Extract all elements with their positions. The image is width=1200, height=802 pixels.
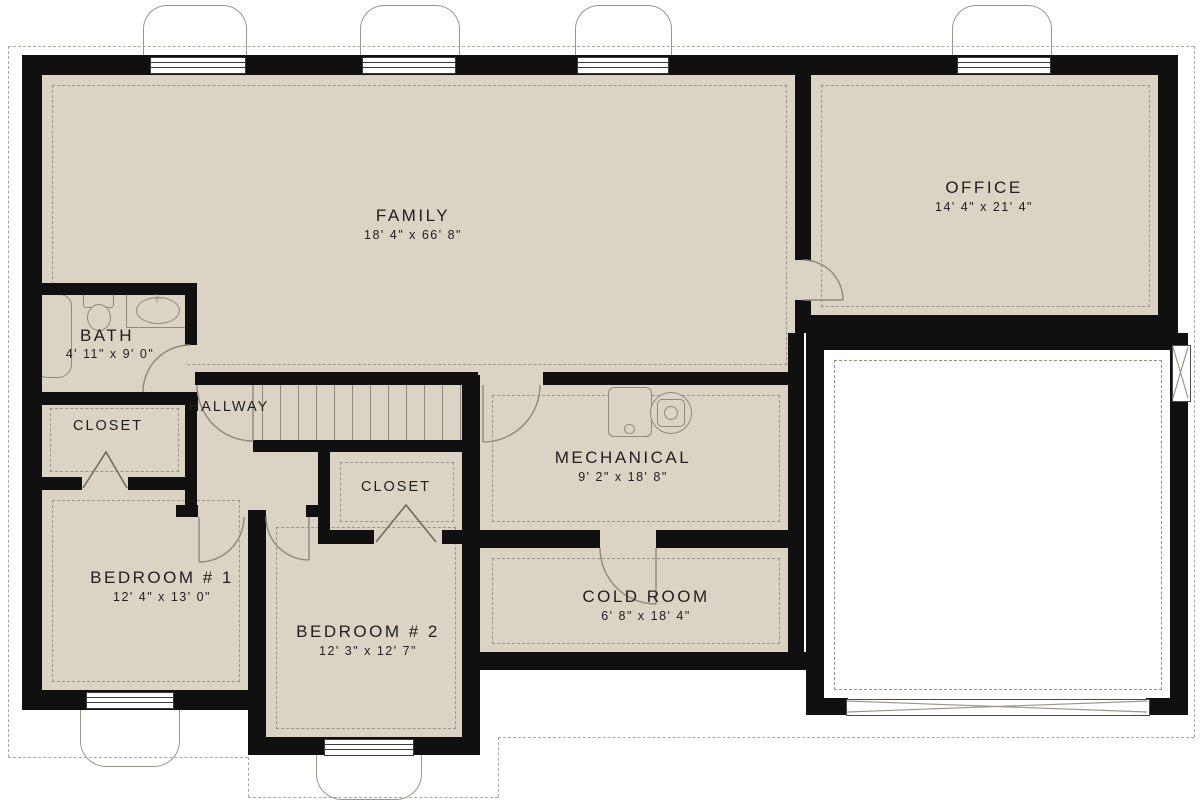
room-label-hallway: HALLWAY: [189, 399, 270, 415]
room-label-cold-room: COLD ROOM: [582, 587, 709, 607]
office-door-arc: [803, 260, 843, 300]
room-dims-bath: 4' 11" x 9' 0": [66, 347, 155, 361]
room-dims-cold-room: 6' 8" x 18' 4": [601, 609, 691, 623]
room-dims-bedroom1: 12' 4" x 13' 0": [113, 590, 211, 604]
room-dims-office: 14' 4" x 21' 4": [935, 200, 1033, 214]
room-dims-mechanical: 9' 2" x 18' 8": [578, 470, 668, 484]
door-symbols: [0, 0, 1200, 802]
closet-middle-door-chevron: [376, 505, 436, 542]
floor-plan: FAMILY 18' 4" x 66' 8" OFFICE 14' 4" x 2…: [0, 0, 1200, 802]
room-label-mechanical: MECHANICAL: [555, 448, 691, 468]
room-label-office: OFFICE: [945, 178, 1022, 198]
garage-door-x-mark: [847, 701, 1147, 712]
room-label-closet-left: CLOSET: [73, 418, 143, 434]
room-dims-family: 18' 4" x 66' 8": [364, 228, 462, 242]
bedroom2-door-arc: [266, 517, 309, 560]
room-label-bath: BATH: [80, 326, 134, 346]
room-label-bedroom1: BEDROOM # 1: [90, 568, 234, 588]
room-dims-bedroom2: 12' 3" x 12' 7": [319, 644, 417, 658]
mech-door-arc: [483, 385, 540, 442]
room-label-closet-middle: CLOSET: [361, 479, 431, 495]
bedroom1-door-arc: [199, 517, 244, 562]
closet-left-door-chevron: [83, 452, 127, 488]
bath-faucet-icon: [152, 294, 162, 302]
garage-side-window-x-mark: [1173, 347, 1188, 398]
room-label-bedroom2: BEDROOM # 2: [296, 622, 440, 642]
room-label-family: FAMILY: [376, 206, 450, 226]
